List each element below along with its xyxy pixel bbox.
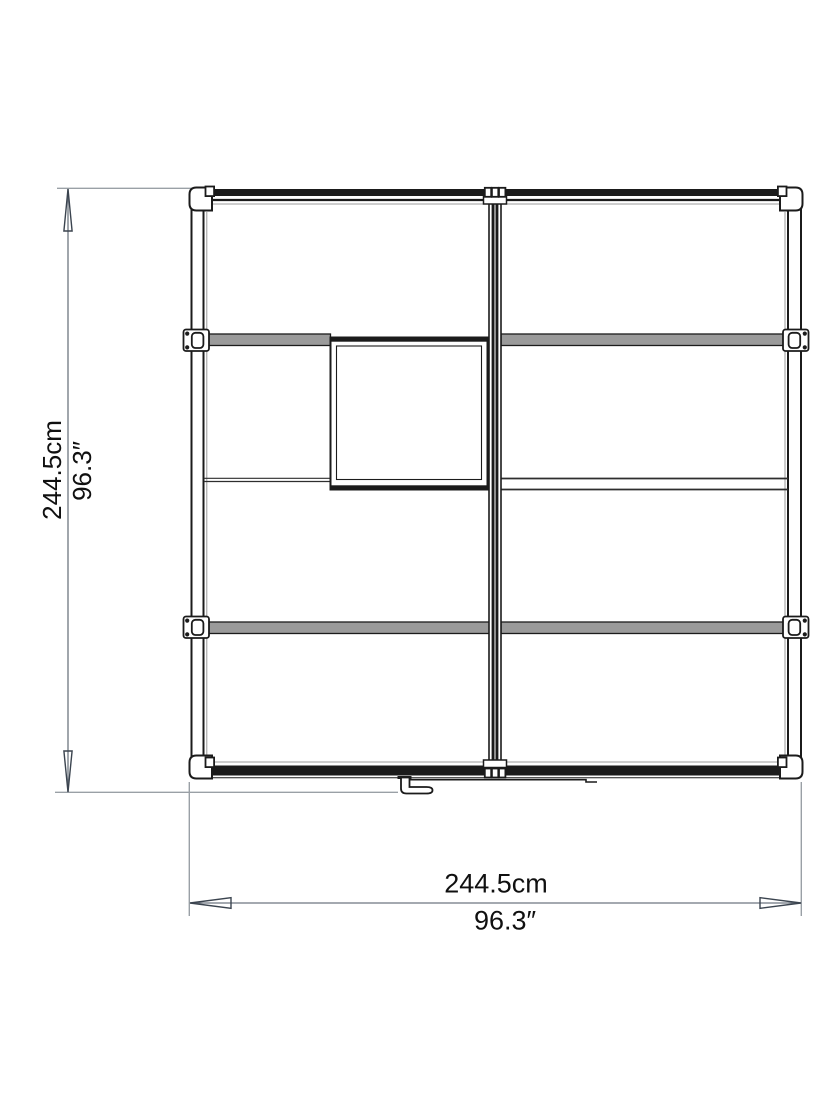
door-edge-line <box>407 780 597 782</box>
corner-bracket-top-left <box>190 187 215 211</box>
crossbar-upper-left <box>204 334 331 346</box>
frame-right <box>785 206 801 759</box>
crossbar-lower-right <box>501 622 788 634</box>
greenhouse-top-view-page: 244.5cm 96.3″ 244.5cm 96.3″ <box>0 0 840 1120</box>
corner-bracket-bottom-left <box>190 756 215 779</box>
hinge-connector-right-lower <box>783 617 809 639</box>
dimension-arrowheads <box>64 189 801 908</box>
roof-window <box>331 338 488 490</box>
hinge-connector-left-upper <box>184 330 210 352</box>
dimension-extension-lines <box>55 188 801 916</box>
crossbar-upper-right <box>501 334 788 346</box>
dimension-label-left-metric: 244.5cm <box>39 420 65 520</box>
crossbar-lower-left <box>204 622 490 634</box>
dimension-label-bottom-metric: 244.5cm <box>444 871 548 898</box>
corner-bracket-bottom-right <box>778 756 803 779</box>
hinge-connector-right-upper <box>783 330 809 352</box>
dimension-lines <box>68 189 801 903</box>
corner-bracket-top-right <box>778 187 803 211</box>
door-handle <box>398 776 433 794</box>
hinge-connector-left-lower <box>184 617 210 639</box>
greenhouse-top-view-drawing <box>0 0 840 1120</box>
dimension-label-bottom-imperial: 96.3″ <box>474 908 536 935</box>
frame-left <box>192 206 207 759</box>
dimension-label-left-imperial: 96.3″ <box>69 441 95 501</box>
